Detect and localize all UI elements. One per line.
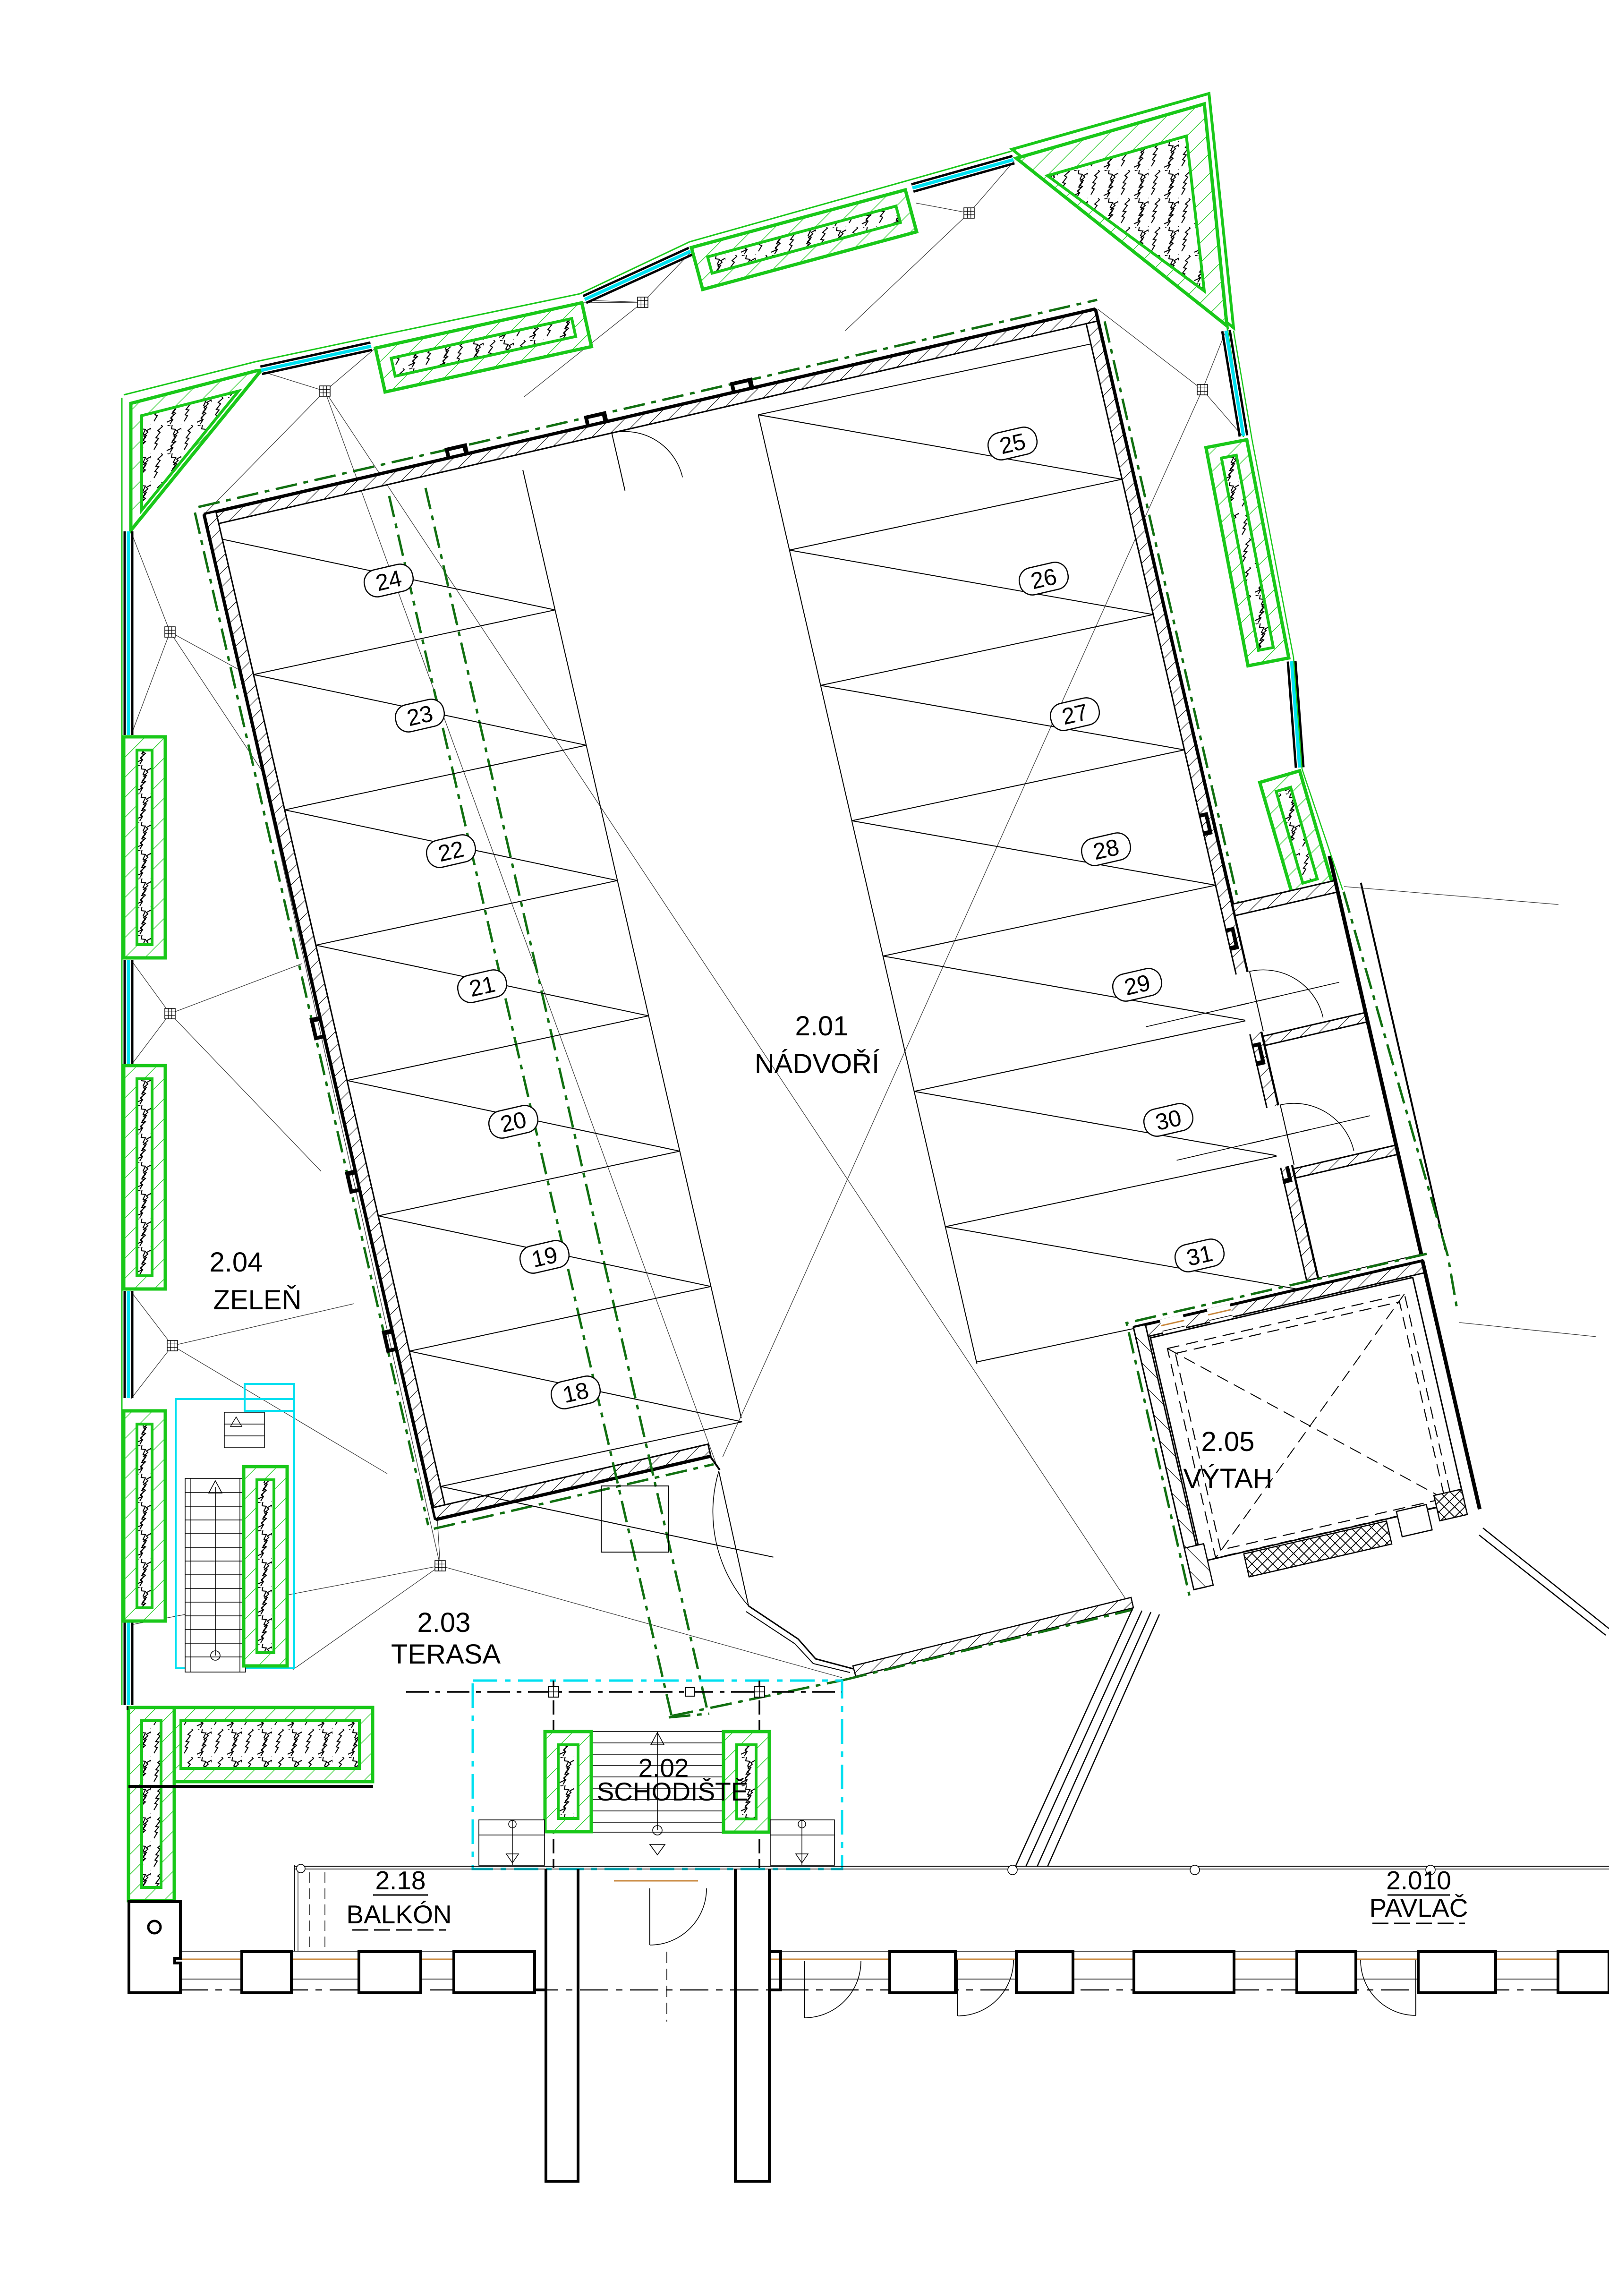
svg-text:2.04: 2.04 — [210, 1247, 263, 1278]
svg-text:VÝTAH: VÝTAH — [1183, 1463, 1272, 1494]
svg-text:2.010: 2.010 — [1386, 1866, 1451, 1895]
svg-text:2.01: 2.01 — [795, 1011, 849, 1041]
svg-text:TERASA: TERASA — [391, 1639, 501, 1670]
svg-text:ZELEŇ: ZELEŇ — [213, 1285, 302, 1315]
svg-text:2.03: 2.03 — [417, 1607, 471, 1638]
svg-text:NÁDVOŘÍ: NÁDVOŘÍ — [755, 1049, 880, 1079]
svg-text:SCHODIŠTĚ: SCHODIŠTĚ — [597, 1777, 749, 1806]
svg-text:2.18: 2.18 — [375, 1866, 426, 1895]
svg-text:2.05: 2.05 — [1201, 1426, 1255, 1457]
svg-text:BALKÓN: BALKÓN — [346, 1900, 451, 1929]
svg-text:PAVLAČ: PAVLAČ — [1370, 1893, 1468, 1922]
